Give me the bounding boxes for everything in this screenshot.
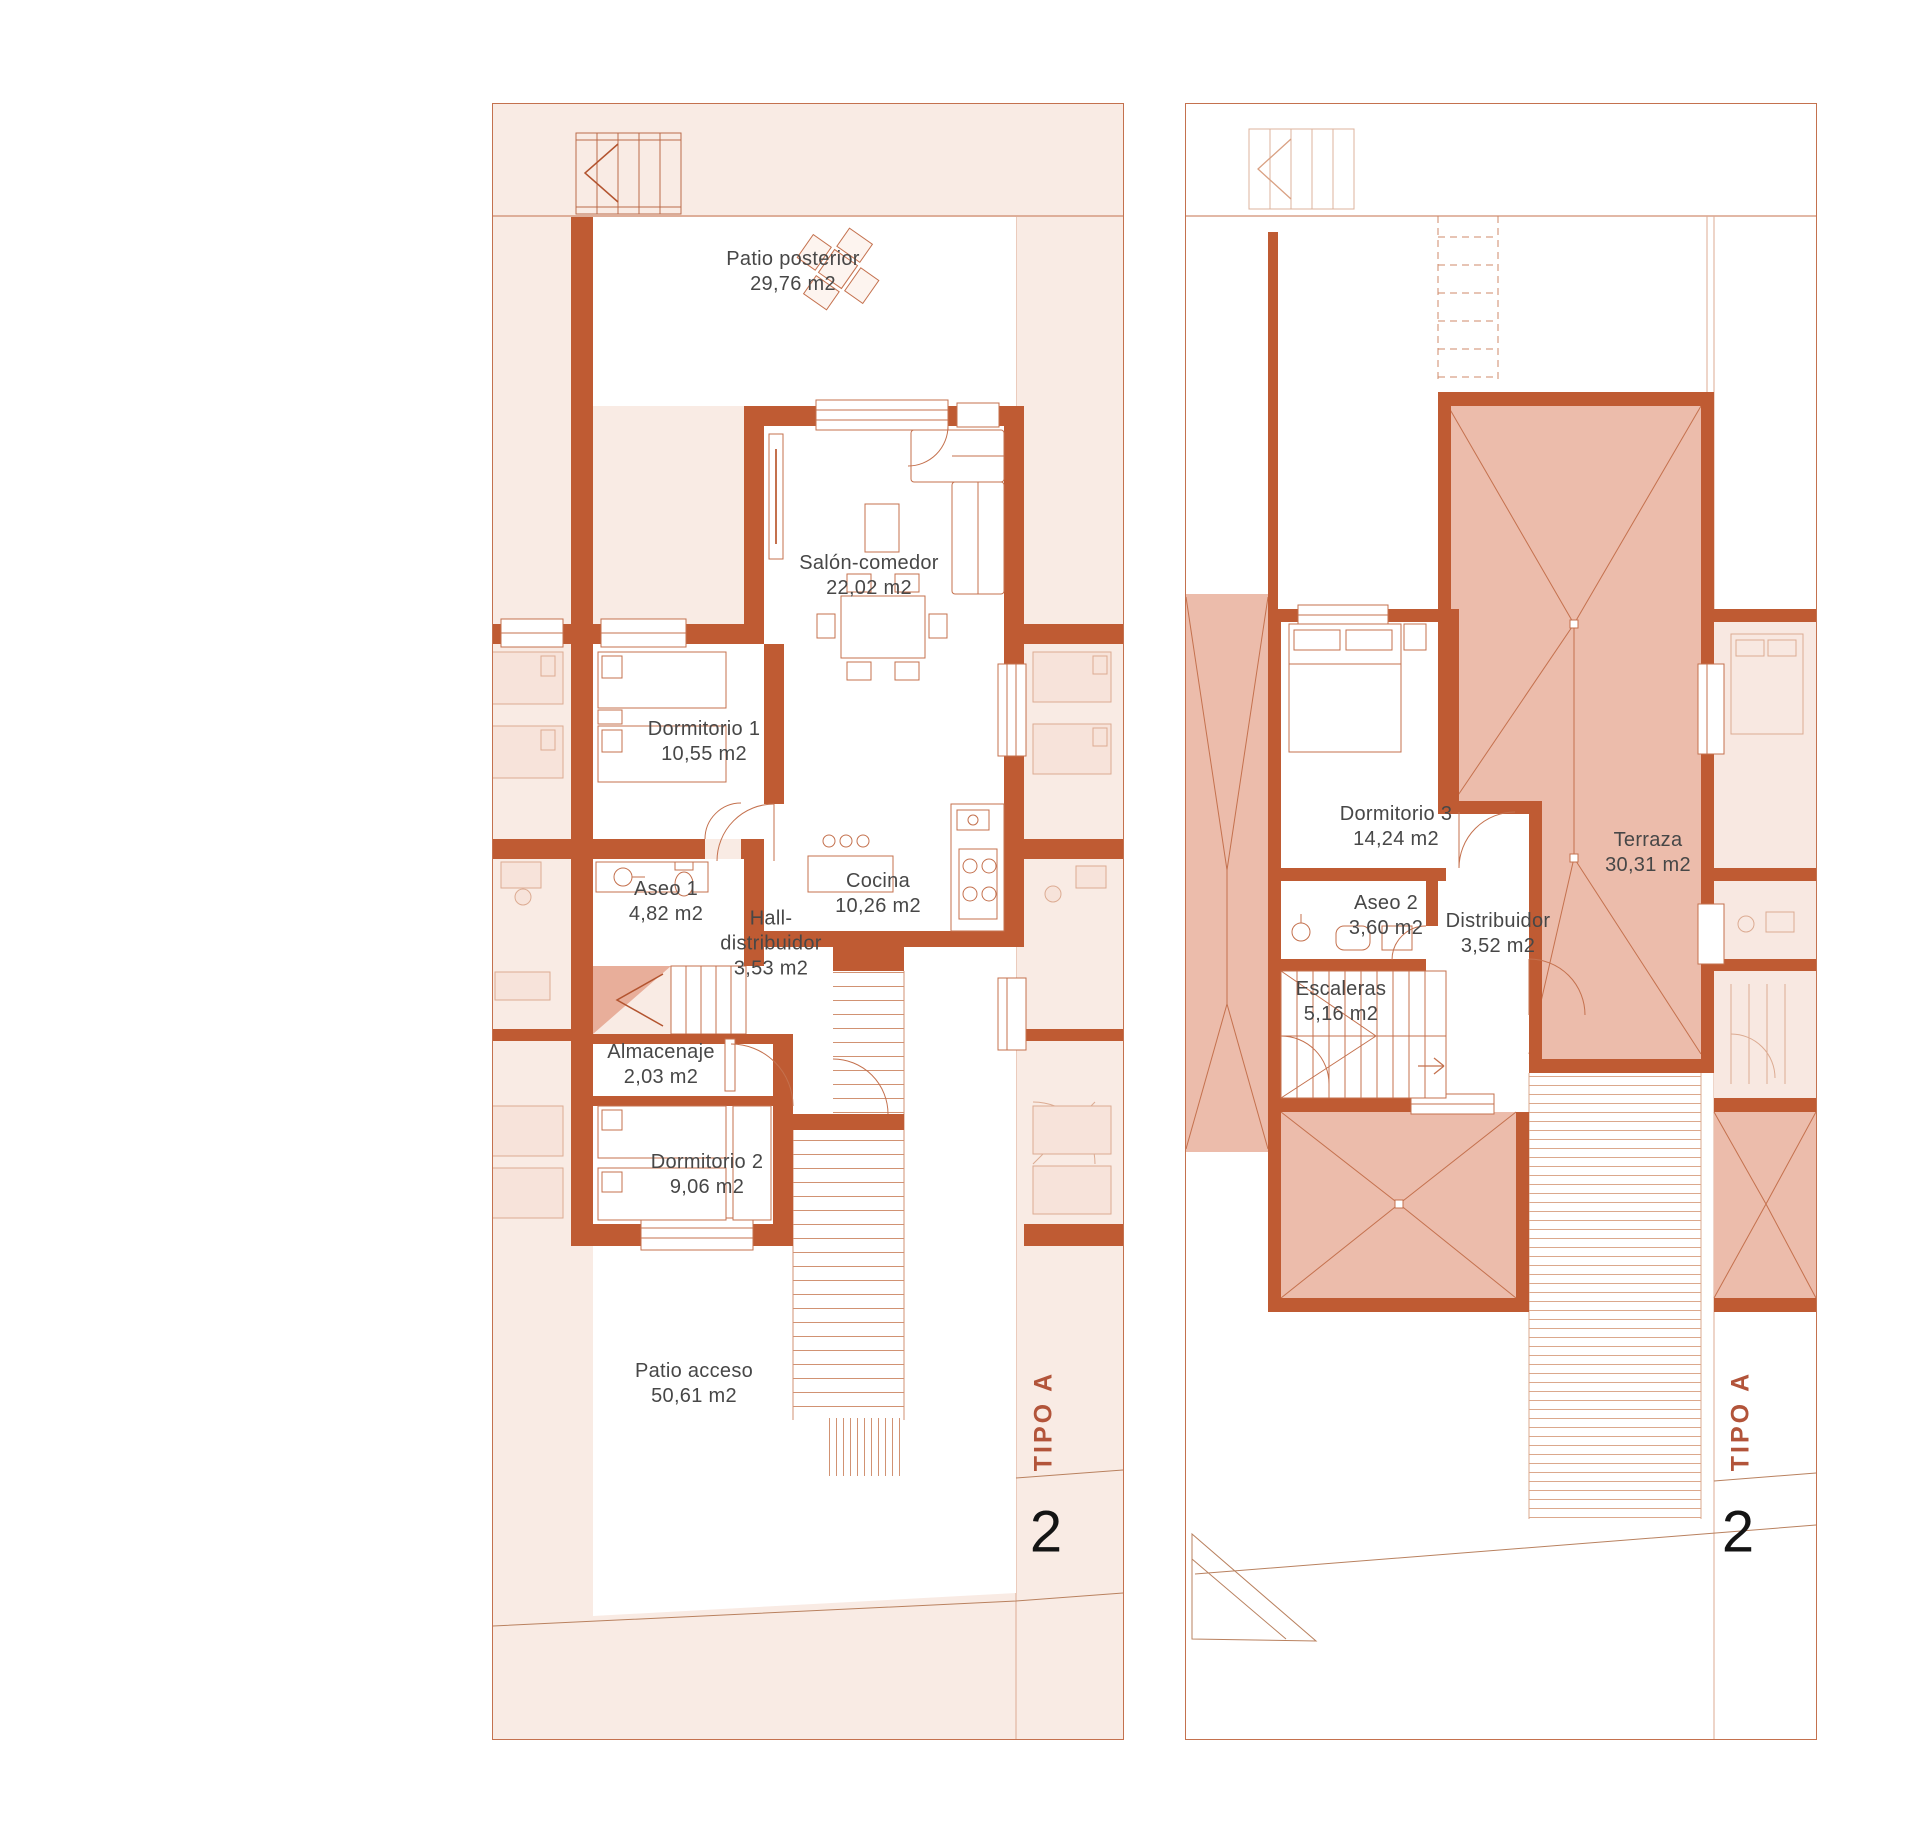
first-floor-plan: Dormitorio 314,24 m2 Aseo 23,60 m2 Distr… [1185, 103, 1817, 1740]
tv-unit [769, 434, 783, 559]
room-label-patio-acceso: Patio acceso50,61 m2 [635, 1359, 753, 1409]
type-label-ground: TIPO A [1030, 1371, 1059, 1471]
ground-floor-plan: Patio posterior29,76 m2 Salón-comedor22,… [492, 103, 1124, 1740]
room-label-dormitorio-1: Dormitorio 110,55 m2 [648, 717, 761, 767]
room-label-escaleras: Escaleras5,16 m2 [1296, 977, 1387, 1027]
room-label-cocina: Cocina10,26 m2 [835, 869, 921, 919]
pool-stair-icon [1249, 129, 1354, 209]
bed-dormitorio-3 [1289, 624, 1426, 752]
room-label-dormitorio-2: Dormitorio 29,06 m2 [651, 1150, 764, 1200]
adjacent-unit-right [1033, 652, 1111, 1214]
room-label-hall-distribuidor: Hall-distribuidor3,53 m2 [703, 907, 839, 982]
type-label-first: TIPO A [1727, 1371, 1756, 1471]
adjacent-unit-left [493, 652, 563, 1218]
pool-stair-icon [576, 133, 681, 214]
room-label-salon-comedor: Salón-comedor22,02 m2 [799, 551, 939, 601]
room-label-aseo-1: Aseo 14,82 m2 [629, 877, 703, 927]
storage-shelf [725, 1039, 735, 1091]
room-label-terraza: Terraza30,31 m2 [1605, 828, 1691, 878]
floor-plan-sheet: Patio posterior29,76 m2 Salón-comedor22,… [0, 0, 1920, 1848]
coffee-table [865, 504, 899, 552]
room-label-almacenaje: Almacenaje2,03 m2 [607, 1040, 715, 1090]
room-label-distribuidor: Distribuidor3,52 m2 [1446, 909, 1551, 959]
unit-number-ground: 2 [1030, 1499, 1062, 1566]
room-label-aseo-2: Aseo 23,60 m2 [1349, 891, 1423, 941]
lower-walkway [1529, 1073, 1701, 1519]
room-label-patio-posterior: Patio posterior29,76 m2 [726, 247, 859, 297]
adjacent-unit-right [1714, 622, 1816, 1098]
upper-walkway-dashed [1438, 216, 1498, 382]
unit-number-first: 2 [1722, 1499, 1754, 1566]
room-label-dormitorio-3: Dormitorio 314,24 m2 [1340, 802, 1453, 852]
